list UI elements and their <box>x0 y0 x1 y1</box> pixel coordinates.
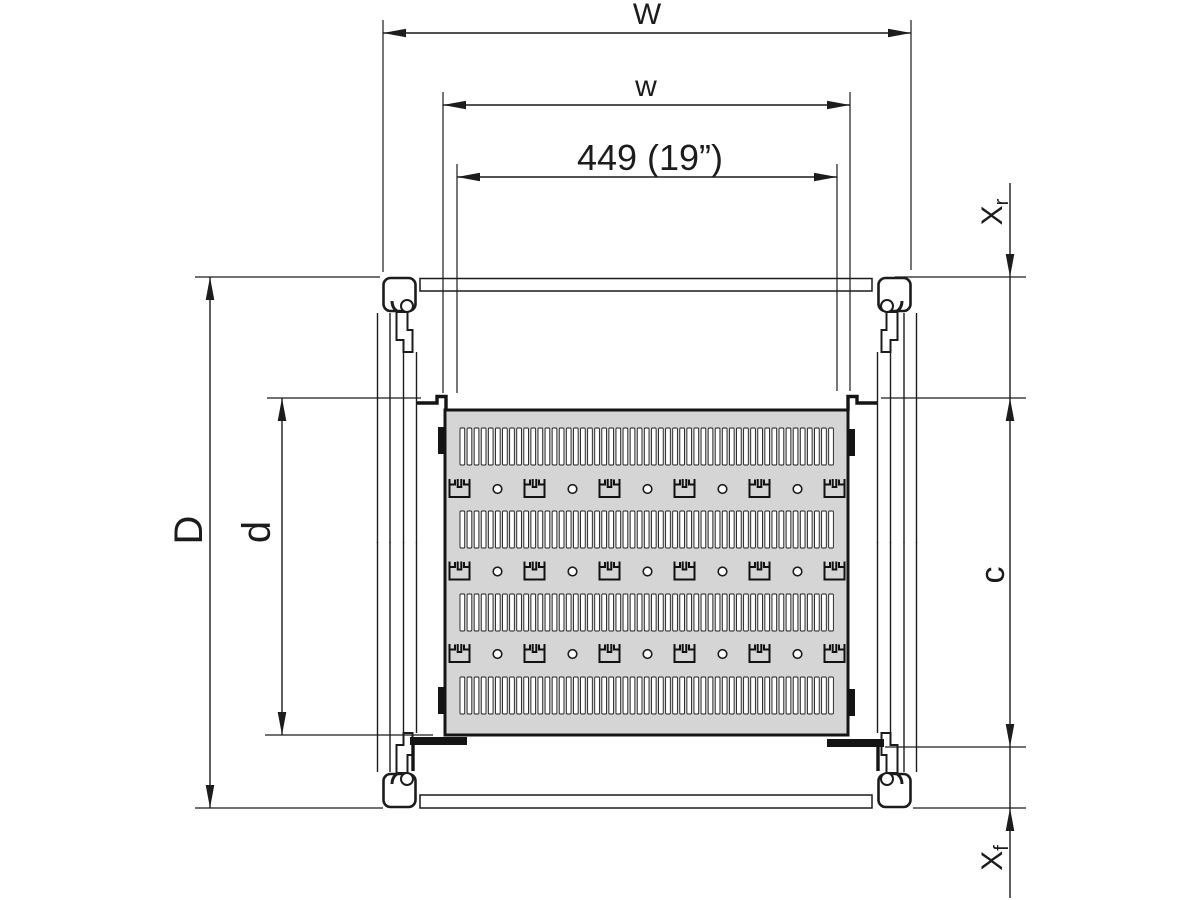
rivet-hole <box>718 567 727 576</box>
vent-slot <box>722 594 727 631</box>
vent-slot <box>666 677 671 714</box>
vent-slot <box>694 677 699 714</box>
vent-slot <box>467 428 472 465</box>
arrowhead <box>383 29 406 38</box>
vent-slot <box>524 511 529 548</box>
vent-slot <box>822 428 827 465</box>
vent-slot <box>616 677 621 714</box>
vent-slot <box>488 428 493 465</box>
vent-slot <box>630 594 635 631</box>
vent-slot <box>566 677 571 714</box>
vent-slot <box>807 677 812 714</box>
vent-slot <box>659 428 664 465</box>
vent-slot <box>666 594 671 631</box>
vent-slot <box>722 428 727 465</box>
vent-slot <box>524 594 529 631</box>
vent-slot <box>659 677 664 714</box>
vent-slot <box>644 511 649 548</box>
vent-slot <box>623 594 628 631</box>
dim-label-front-offset: Xf <box>976 845 1013 871</box>
vent-slot <box>758 677 763 714</box>
vent-slot <box>793 511 798 548</box>
vent-slot <box>616 428 621 465</box>
vent-slot <box>609 594 614 631</box>
vent-slot <box>666 511 671 548</box>
vent-slot <box>815 677 820 714</box>
vent-slot <box>460 677 465 714</box>
vent-slot <box>495 428 500 465</box>
vent-slot <box>822 511 827 548</box>
vent-slot <box>609 511 614 548</box>
shelf-bracket-front-left <box>410 737 467 745</box>
rivet-hole <box>718 650 727 659</box>
vent-slot <box>531 594 536 631</box>
vent-slot <box>744 594 749 631</box>
vent-slot <box>545 677 550 714</box>
vent-slot <box>644 594 649 631</box>
vent-slot <box>765 677 770 714</box>
vent-slot <box>531 677 536 714</box>
vent-slot <box>503 511 508 548</box>
dim-label-rear-offset: Xr <box>976 198 1013 225</box>
rivet-hole <box>568 567 577 576</box>
vent-slot <box>623 677 628 714</box>
vent-slot <box>822 677 827 714</box>
vent-slot <box>538 594 543 631</box>
vent-slot <box>793 594 798 631</box>
arrowhead <box>1006 254 1015 277</box>
shelf-tab <box>847 689 855 716</box>
vent-slot <box>481 428 486 465</box>
vent-slot <box>524 677 529 714</box>
vent-slot <box>701 677 706 714</box>
vent-slot <box>552 677 557 714</box>
vent-slot <box>744 511 749 548</box>
vent-slot <box>729 428 734 465</box>
rack-shelf-top-view-drawing: W w 449 (19”) D d c Xr Xf <box>0 0 1200 900</box>
shelf-tab <box>847 429 855 456</box>
vent-slot <box>524 428 529 465</box>
vent-slot <box>623 511 628 548</box>
vent-slot <box>510 677 515 714</box>
vent-slot <box>729 511 734 548</box>
rivet-hole <box>493 485 502 494</box>
vent-slot <box>772 428 777 465</box>
vent-slot <box>488 511 493 548</box>
vent-slot <box>552 511 557 548</box>
vent-slot <box>595 677 600 714</box>
vent-slot <box>495 594 500 631</box>
vent-slot <box>460 428 465 465</box>
vent-slot <box>751 677 756 714</box>
vent-slot <box>474 594 479 631</box>
vent-slot <box>545 511 550 548</box>
vent-slot <box>708 428 713 465</box>
vent-slot <box>829 428 834 465</box>
vent-slot <box>602 594 607 631</box>
vent-slot <box>630 428 635 465</box>
vent-slot <box>701 511 706 548</box>
vent-slot <box>829 677 834 714</box>
vent-slot <box>637 511 642 548</box>
vent-slot <box>474 511 479 548</box>
vent-slot <box>517 594 522 631</box>
vent-slot <box>517 511 522 548</box>
vent-slot <box>807 594 812 631</box>
vent-slot <box>517 677 522 714</box>
vent-slot <box>581 511 586 548</box>
arrowhead <box>1006 808 1015 831</box>
vent-slot <box>800 428 805 465</box>
vent-slot <box>687 428 692 465</box>
vent-slot <box>772 677 777 714</box>
vent-slot <box>552 594 557 631</box>
vent-slot <box>573 511 578 548</box>
rivet-hole <box>643 485 652 494</box>
vent-slot <box>481 677 486 714</box>
vent-slot <box>503 594 508 631</box>
vent-slot <box>637 428 642 465</box>
vent-slot <box>673 428 678 465</box>
vent-slot <box>517 428 522 465</box>
vent-slot <box>779 677 784 714</box>
vent-slot <box>503 677 508 714</box>
vent-slot <box>588 594 593 631</box>
vent-slot <box>573 594 578 631</box>
vent-slot <box>694 428 699 465</box>
vent-slot <box>737 594 742 631</box>
vent-slot <box>488 594 493 631</box>
vent-slot <box>800 511 805 548</box>
vent-slot <box>786 511 791 548</box>
vent-slot <box>651 677 656 714</box>
vent-slot <box>616 594 621 631</box>
vent-slot <box>680 511 685 548</box>
vent-slot <box>758 511 763 548</box>
corner-bottom-right <box>878 542 917 807</box>
vent-slot <box>786 594 791 631</box>
corner-top-left <box>378 278 417 543</box>
corner-bottom-left <box>378 542 417 807</box>
vent-slot <box>503 428 508 465</box>
vent-slot <box>510 428 515 465</box>
vent-slot <box>815 428 820 465</box>
vent-slot <box>680 677 685 714</box>
vent-slot <box>595 594 600 631</box>
technical-drawing-page: W w 449 (19”) D d c Xr Xf <box>0 0 1200 900</box>
arrowhead <box>206 785 215 808</box>
corner-top-right <box>878 278 917 543</box>
vent-slot <box>751 511 756 548</box>
vent-slot <box>474 428 479 465</box>
vent-slot <box>800 594 805 631</box>
vent-slot <box>673 511 678 548</box>
arrowhead <box>206 277 215 300</box>
vent-slot <box>637 594 642 631</box>
vent-slot <box>595 428 600 465</box>
vent-slot <box>772 511 777 548</box>
dim-label-shelf-depth: c <box>974 567 1012 584</box>
arrowhead <box>827 101 850 110</box>
vent-slot <box>651 594 656 631</box>
vent-slot <box>538 428 543 465</box>
vent-slot <box>758 594 763 631</box>
vent-slot <box>744 677 749 714</box>
vent-slot <box>581 594 586 631</box>
shelf-bracket-rear-left <box>417 397 446 412</box>
vent-slot <box>687 677 692 714</box>
vent-slot <box>807 428 812 465</box>
vent-slot <box>772 594 777 631</box>
dim-label-overall-depth: D <box>167 516 211 545</box>
vent-slot <box>779 594 784 631</box>
vent-slot <box>786 677 791 714</box>
vent-slot <box>765 594 770 631</box>
arrowhead <box>814 173 837 182</box>
vent-slot <box>722 511 727 548</box>
vent-slot <box>545 594 550 631</box>
vent-slot <box>651 511 656 548</box>
arrowhead <box>888 29 911 38</box>
vent-slot <box>701 428 706 465</box>
vent-slot <box>708 677 713 714</box>
vent-slot <box>829 594 834 631</box>
vent-slot <box>488 677 493 714</box>
rear-panel-bar <box>420 279 872 292</box>
rivet-hole <box>643 567 652 576</box>
vent-slot <box>566 428 571 465</box>
vent-slot <box>467 594 472 631</box>
vent-slot <box>644 428 649 465</box>
vent-slot <box>651 428 656 465</box>
vent-slot <box>559 428 564 465</box>
vent-slot <box>829 511 834 548</box>
vent-slot <box>566 511 571 548</box>
dim-label-usable-width: w <box>634 70 657 103</box>
vent-slot <box>800 677 805 714</box>
vent-slot <box>637 677 642 714</box>
vent-slot <box>467 677 472 714</box>
rivet-hole <box>793 650 802 659</box>
vent-slot <box>559 594 564 631</box>
vent-slot <box>630 677 635 714</box>
arrowhead <box>1006 398 1015 421</box>
vent-slot <box>609 428 614 465</box>
vent-slot <box>460 594 465 631</box>
vent-slot <box>793 428 798 465</box>
vent-slot <box>822 594 827 631</box>
vent-slot <box>779 511 784 548</box>
vent-slot <box>715 594 720 631</box>
vent-slot <box>807 511 812 548</box>
dim-label-overall-width: W <box>633 0 662 31</box>
vent-slot <box>673 594 678 631</box>
vent-slot <box>602 677 607 714</box>
vent-slot <box>538 511 543 548</box>
vent-slot <box>715 428 720 465</box>
vent-slot <box>680 428 685 465</box>
vent-slot <box>715 677 720 714</box>
vent-slot <box>602 511 607 548</box>
vent-slot <box>630 511 635 548</box>
vent-slot <box>545 428 550 465</box>
vent-slot <box>595 511 600 548</box>
vent-slot <box>559 511 564 548</box>
dim-label-mounting-width: 449 (19”) <box>577 137 723 178</box>
vent-slot <box>659 594 664 631</box>
shelf-bracket-front-right <box>827 739 884 747</box>
shelf-bracket-rear-right <box>848 397 877 412</box>
vent-slot <box>815 511 820 548</box>
vent-slot <box>581 677 586 714</box>
vent-slot <box>510 511 515 548</box>
vent-slot <box>737 677 742 714</box>
vent-slot <box>722 677 727 714</box>
vent-slot <box>765 428 770 465</box>
vent-slot <box>680 594 685 631</box>
vent-slot <box>694 594 699 631</box>
vent-slot <box>552 428 557 465</box>
vent-slot <box>758 428 763 465</box>
vent-slot <box>673 677 678 714</box>
vent-slot <box>715 511 720 548</box>
vent-slot <box>687 594 692 631</box>
rivet-hole <box>718 485 727 494</box>
vent-slot <box>793 677 798 714</box>
vent-slot <box>687 511 692 548</box>
vent-slot <box>815 594 820 631</box>
vent-slot <box>616 511 621 548</box>
vent-slot <box>588 511 593 548</box>
arrowhead <box>457 173 480 182</box>
vent-slot <box>751 428 756 465</box>
front-panel-bar <box>420 795 872 808</box>
vent-slot <box>765 511 770 548</box>
vent-slot <box>623 428 628 465</box>
vent-slot <box>467 511 472 548</box>
vent-slot <box>588 428 593 465</box>
arrowhead <box>443 101 466 110</box>
vent-slot <box>588 677 593 714</box>
vent-slot <box>573 428 578 465</box>
vent-slot <box>729 594 734 631</box>
vent-slot <box>708 511 713 548</box>
vent-slot <box>531 511 536 548</box>
vent-slot <box>531 428 536 465</box>
rivet-hole <box>643 650 652 659</box>
vent-slot <box>644 677 649 714</box>
vent-slot <box>573 677 578 714</box>
vent-slot <box>708 594 713 631</box>
vent-slot <box>609 677 614 714</box>
rivet-hole <box>568 650 577 659</box>
arrowhead <box>278 712 287 735</box>
rivet-hole <box>568 485 577 494</box>
vent-slot <box>737 511 742 548</box>
vent-slot <box>751 594 756 631</box>
rivet-hole <box>493 567 502 576</box>
vent-slot <box>510 594 515 631</box>
vent-slot <box>786 428 791 465</box>
vent-slot <box>481 594 486 631</box>
shelf <box>438 410 855 735</box>
vent-slot <box>460 511 465 548</box>
vent-slot <box>566 594 571 631</box>
vent-slot <box>559 677 564 714</box>
shelf-tab <box>438 427 446 454</box>
vent-slot <box>737 428 742 465</box>
vent-slot <box>694 511 699 548</box>
vent-slot <box>474 677 479 714</box>
vent-slot <box>481 511 486 548</box>
rivet-hole <box>493 650 502 659</box>
vent-slot <box>602 428 607 465</box>
vent-slot <box>495 511 500 548</box>
dim-label-usable-depth: d <box>235 521 279 543</box>
arrowhead <box>278 398 287 421</box>
vent-slot <box>744 428 749 465</box>
vent-slot <box>495 677 500 714</box>
vent-slot <box>581 428 586 465</box>
vent-slot <box>729 677 734 714</box>
arrowhead <box>1006 724 1015 747</box>
shelf-tab <box>438 687 446 714</box>
vent-slot <box>659 511 664 548</box>
rivet-hole <box>793 485 802 494</box>
vent-slot <box>666 428 671 465</box>
vent-slot <box>701 594 706 631</box>
vent-slot <box>538 677 543 714</box>
vent-slot <box>779 428 784 465</box>
rivet-hole <box>793 567 802 576</box>
